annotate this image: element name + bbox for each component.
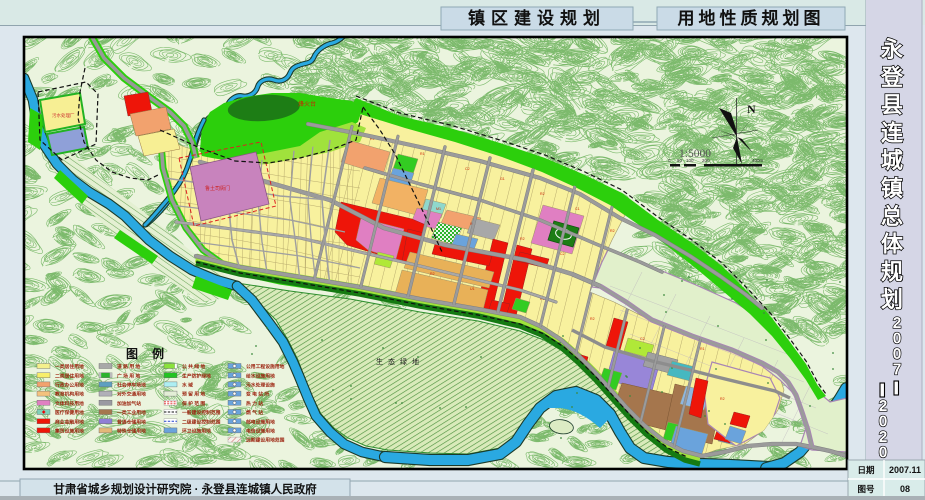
- svg-text:U1: U1: [470, 287, 475, 291]
- svg-text:生产防护绿地: 生产防护绿地: [182, 372, 211, 379]
- svg-text:特殊仓储用地: 特殊仓储用地: [117, 428, 146, 435]
- svg-text:生态绿地: 生态绿地: [376, 357, 424, 366]
- svg-text:C2: C2: [640, 337, 645, 341]
- svg-text:镇区建设规划: 镇区建设规划: [468, 8, 606, 28]
- svg-text:N: N: [747, 102, 756, 116]
- svg-text:0: 0: [893, 346, 902, 363]
- svg-text:2007.11: 2007.11: [889, 465, 921, 475]
- svg-text:R2: R2: [430, 272, 435, 276]
- svg-text:用地性质规划图: 用地性质规划图: [678, 8, 825, 28]
- svg-text:0: 0: [879, 414, 888, 431]
- svg-text:R2: R2: [590, 317, 595, 321]
- svg-text:M1: M1: [436, 207, 441, 211]
- svg-text:50: 50: [677, 158, 683, 163]
- svg-text:水 域: 水 域: [181, 382, 193, 389]
- svg-text:鲁土司衙门: 鲁土司衙门: [205, 185, 230, 192]
- svg-text:污水处理厂: 污水处理厂: [52, 112, 75, 119]
- svg-text:2: 2: [893, 315, 902, 332]
- svg-text:R2: R2: [520, 237, 525, 241]
- svg-text:商业金融用地: 商业金融用地: [55, 418, 84, 425]
- svg-text:烽火台: 烽火台: [298, 100, 316, 108]
- svg-text:C2: C2: [560, 252, 565, 256]
- svg-text:县: 县: [881, 93, 903, 118]
- svg-text:二类居住用地: 二类居住用地: [55, 372, 84, 379]
- svg-text:燃 气 站: 燃 气 站: [246, 409, 263, 416]
- svg-text:广 场 用 地: 广 场 用 地: [117, 372, 140, 379]
- svg-text:电信设施用地: 电信设施用地: [246, 428, 275, 435]
- svg-text:2: 2: [879, 429, 888, 446]
- svg-text:预 留 用 地: 预 留 用 地: [182, 391, 205, 398]
- svg-text:C2: C2: [465, 167, 470, 171]
- svg-text:变 电 站 所: 变 电 站 所: [246, 391, 269, 398]
- svg-text:体: 体: [881, 232, 904, 257]
- svg-text:文体科技用地: 文体科技用地: [55, 400, 84, 407]
- svg-text:普通仓储用地: 普通仓储用地: [117, 418, 146, 425]
- svg-text:100: 100: [686, 158, 694, 163]
- svg-text:0: 0: [893, 331, 902, 348]
- svg-text:2: 2: [879, 398, 888, 415]
- svg-text:0: 0: [879, 445, 888, 462]
- svg-text:对外交通用地: 对外交通用地: [117, 391, 146, 398]
- svg-text:公 共 绿 地: 公 共 绿 地: [182, 363, 205, 370]
- svg-text:城: 城: [881, 148, 903, 173]
- svg-text:甘肃省城乡规划设计研究院 · 永登县连城镇人民政府: 甘肃省城乡规划设计研究院 · 永登县连城镇人民政府: [53, 482, 317, 496]
- svg-text:C1: C1: [575, 207, 580, 211]
- svg-text:远期建设用地范围: 远期建设用地范围: [246, 437, 285, 444]
- svg-text:集贸设施用地: 集贸设施用地: [54, 428, 84, 435]
- svg-text:总: 总: [881, 204, 903, 229]
- svg-text:R2: R2: [610, 229, 615, 233]
- svg-text:医疗保健用地: 医疗保健用地: [55, 409, 84, 416]
- svg-text:社会停车场地: 社会停车场地: [116, 382, 146, 389]
- svg-text:环卫设施用地: 环卫设施用地: [182, 428, 211, 435]
- svg-text:G1: G1: [500, 177, 505, 181]
- svg-text:划: 划: [881, 287, 903, 312]
- svg-text:热 力 站: 热 力 站: [246, 400, 263, 407]
- svg-text:一类居住用地: 一类居住用地: [55, 363, 84, 370]
- svg-text:永: 永: [881, 37, 903, 62]
- svg-text:公用工程设施用地: 公用工程设施用地: [246, 363, 285, 370]
- svg-text:一般建设控制范围: 一般建设控制范围: [182, 409, 221, 416]
- svg-text:登: 登: [880, 65, 904, 90]
- svg-text:教育机构用地: 教育机构用地: [54, 391, 84, 398]
- svg-text:规: 规: [881, 259, 903, 284]
- svg-text:邮电设施用地: 邮电设施用地: [246, 418, 275, 425]
- svg-text:加油加气站: 加油加气站: [116, 400, 141, 407]
- svg-text:道 路 用 地: 道 路 用 地: [117, 363, 140, 370]
- svg-text:行政办公用地: 行政办公用地: [54, 382, 84, 389]
- svg-text:图例: 图例: [126, 346, 178, 361]
- svg-text:200: 200: [702, 158, 710, 163]
- svg-text:一类工业用地: 一类工业用地: [117, 409, 146, 416]
- svg-text:日期: 日期: [857, 465, 875, 475]
- svg-text:图号: 图号: [857, 484, 875, 494]
- svg-text:R1: R1: [420, 152, 425, 156]
- svg-text:污水处理设施: 污水处理设施: [246, 382, 275, 389]
- svg-text:R2: R2: [720, 397, 725, 401]
- svg-text:R2: R2: [540, 192, 545, 196]
- svg-text:连: 连: [881, 120, 904, 145]
- svg-text:R1: R1: [700, 347, 705, 351]
- svg-text:给水设施用地: 给水设施用地: [246, 372, 275, 379]
- svg-text:二级建设控制范围: 二级建设控制范围: [182, 418, 221, 425]
- svg-text:7: 7: [893, 362, 902, 379]
- svg-text:镇: 镇: [881, 176, 903, 201]
- svg-text:保 护 范 围: 保 护 范 围: [181, 400, 205, 407]
- svg-text:400m: 400m: [752, 158, 764, 163]
- svg-text:08: 08: [900, 484, 910, 494]
